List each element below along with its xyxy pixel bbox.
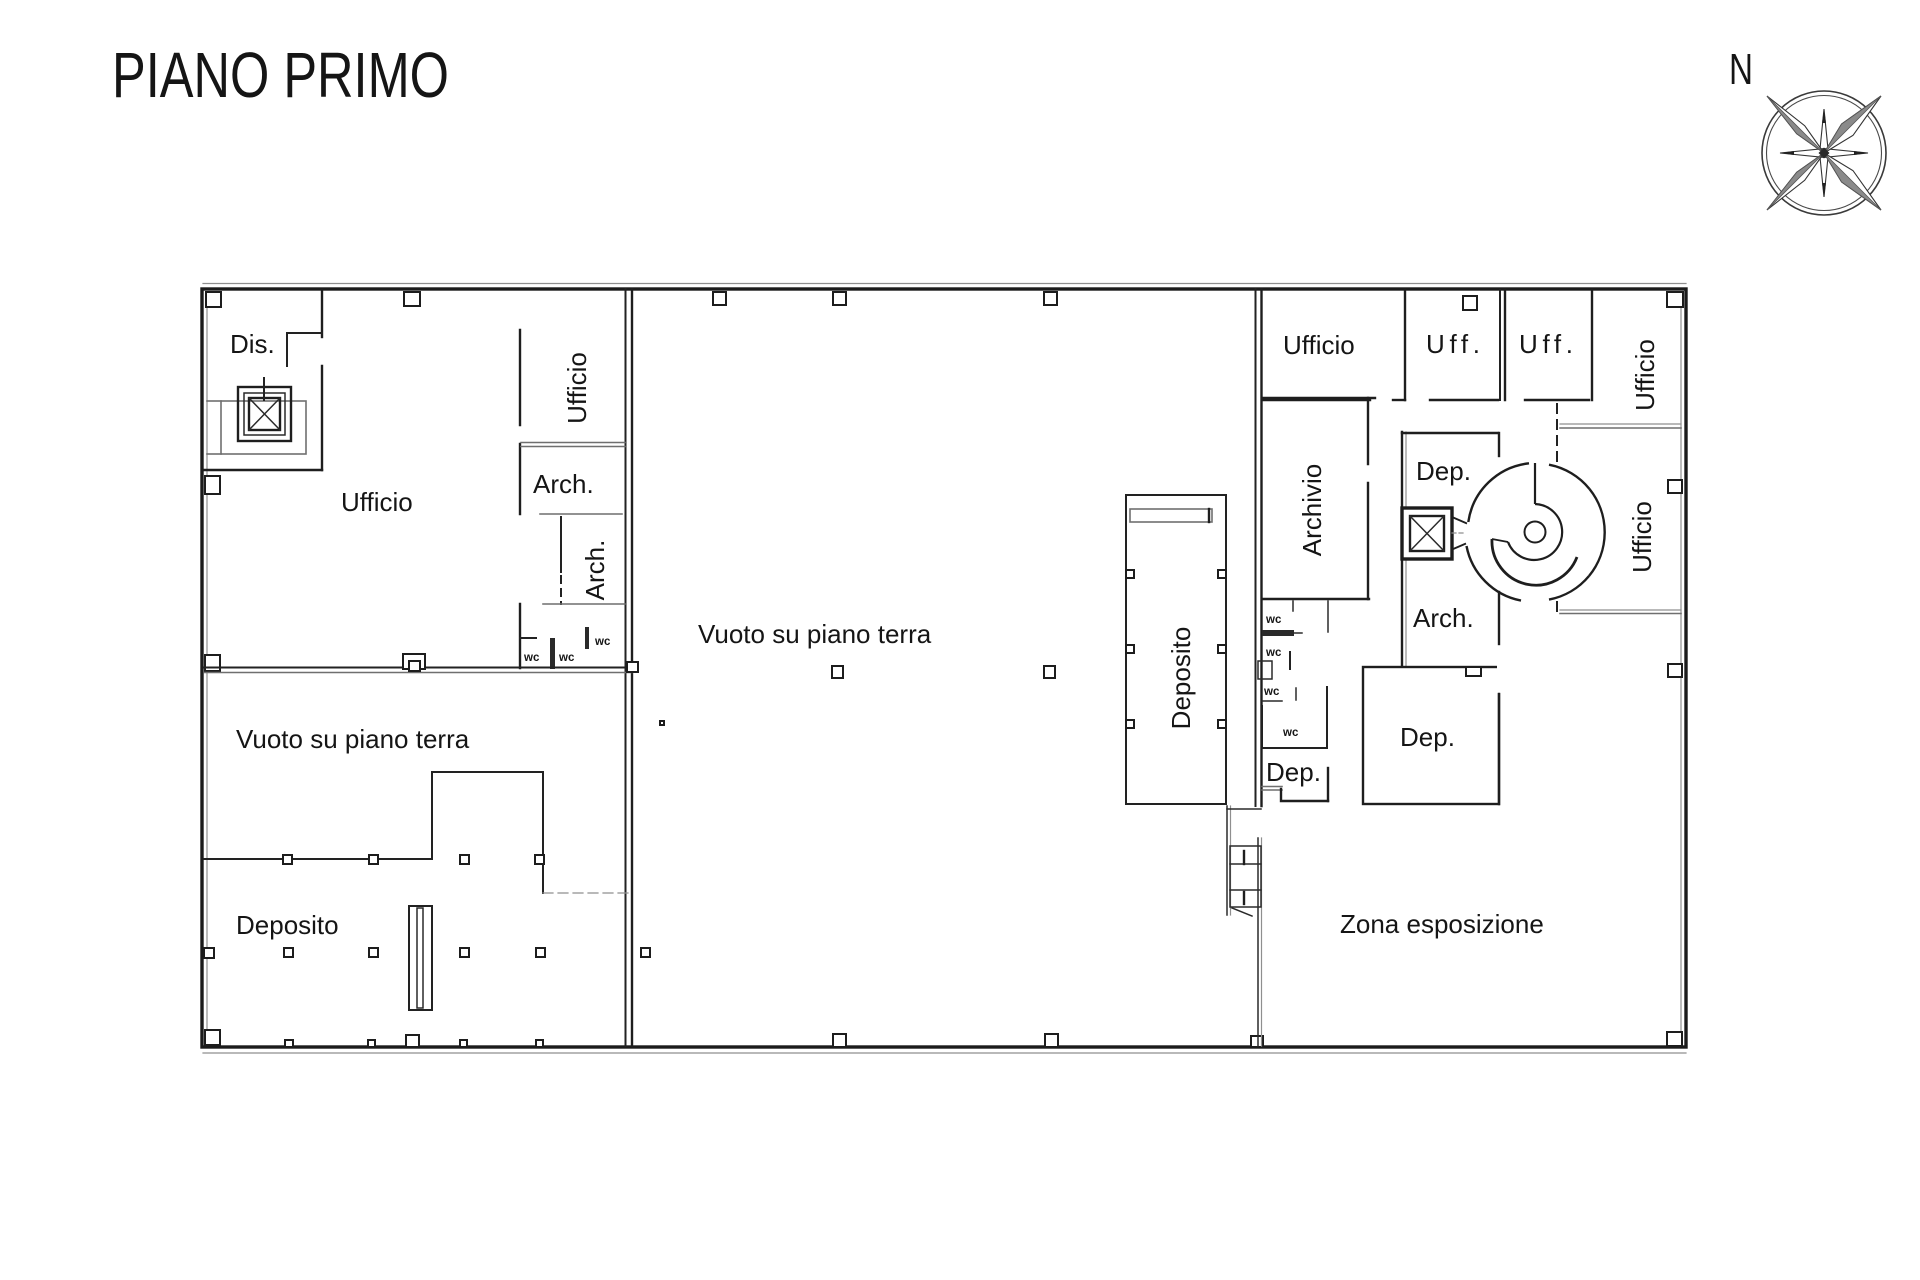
- svg-text:wc: wc: [1265, 614, 1282, 626]
- svg-text:Arch.: Arch.: [580, 540, 610, 601]
- svg-text:Uff.: Uff.: [1519, 329, 1573, 359]
- svg-text:Vuoto su piano terra: Vuoto su piano terra: [236, 724, 470, 754]
- svg-text:wc: wc: [523, 652, 540, 664]
- svg-text:Arch.: Arch.: [1413, 603, 1474, 633]
- svg-text:Vuoto su piano terra: Vuoto su piano terra: [698, 619, 932, 649]
- svg-text:wc: wc: [594, 636, 611, 648]
- svg-text:Arch.: Arch.: [533, 469, 594, 499]
- svg-text:Archivio: Archivio: [1297, 464, 1327, 556]
- svg-text:Uff.: Uff.: [1426, 329, 1480, 359]
- svg-text:Zona esposizione: Zona esposizione: [1340, 909, 1544, 939]
- svg-text:wc: wc: [1282, 727, 1299, 739]
- svg-text:N: N: [1729, 45, 1753, 94]
- svg-text:Deposito: Deposito: [236, 910, 339, 940]
- svg-text:Deposito: Deposito: [1166, 627, 1196, 730]
- svg-text:Ufficio: Ufficio: [1627, 501, 1657, 573]
- svg-text:Dis.: Dis.: [230, 329, 275, 359]
- svg-text:Dep.: Dep.: [1266, 757, 1321, 787]
- svg-text:Dep.: Dep.: [1416, 456, 1471, 486]
- svg-text:Ufficio: Ufficio: [562, 352, 592, 424]
- svg-text:Ufficio: Ufficio: [1283, 330, 1355, 360]
- svg-text:Dep.: Dep.: [1400, 722, 1455, 752]
- svg-text:wc: wc: [1263, 686, 1280, 698]
- svg-text:Ufficio: Ufficio: [1630, 339, 1660, 411]
- svg-text:wc: wc: [558, 652, 575, 664]
- svg-text:wc: wc: [1265, 647, 1282, 659]
- svg-text:PIANO PRIMO: PIANO PRIMO: [112, 39, 449, 111]
- svg-text:Ufficio: Ufficio: [341, 487, 413, 517]
